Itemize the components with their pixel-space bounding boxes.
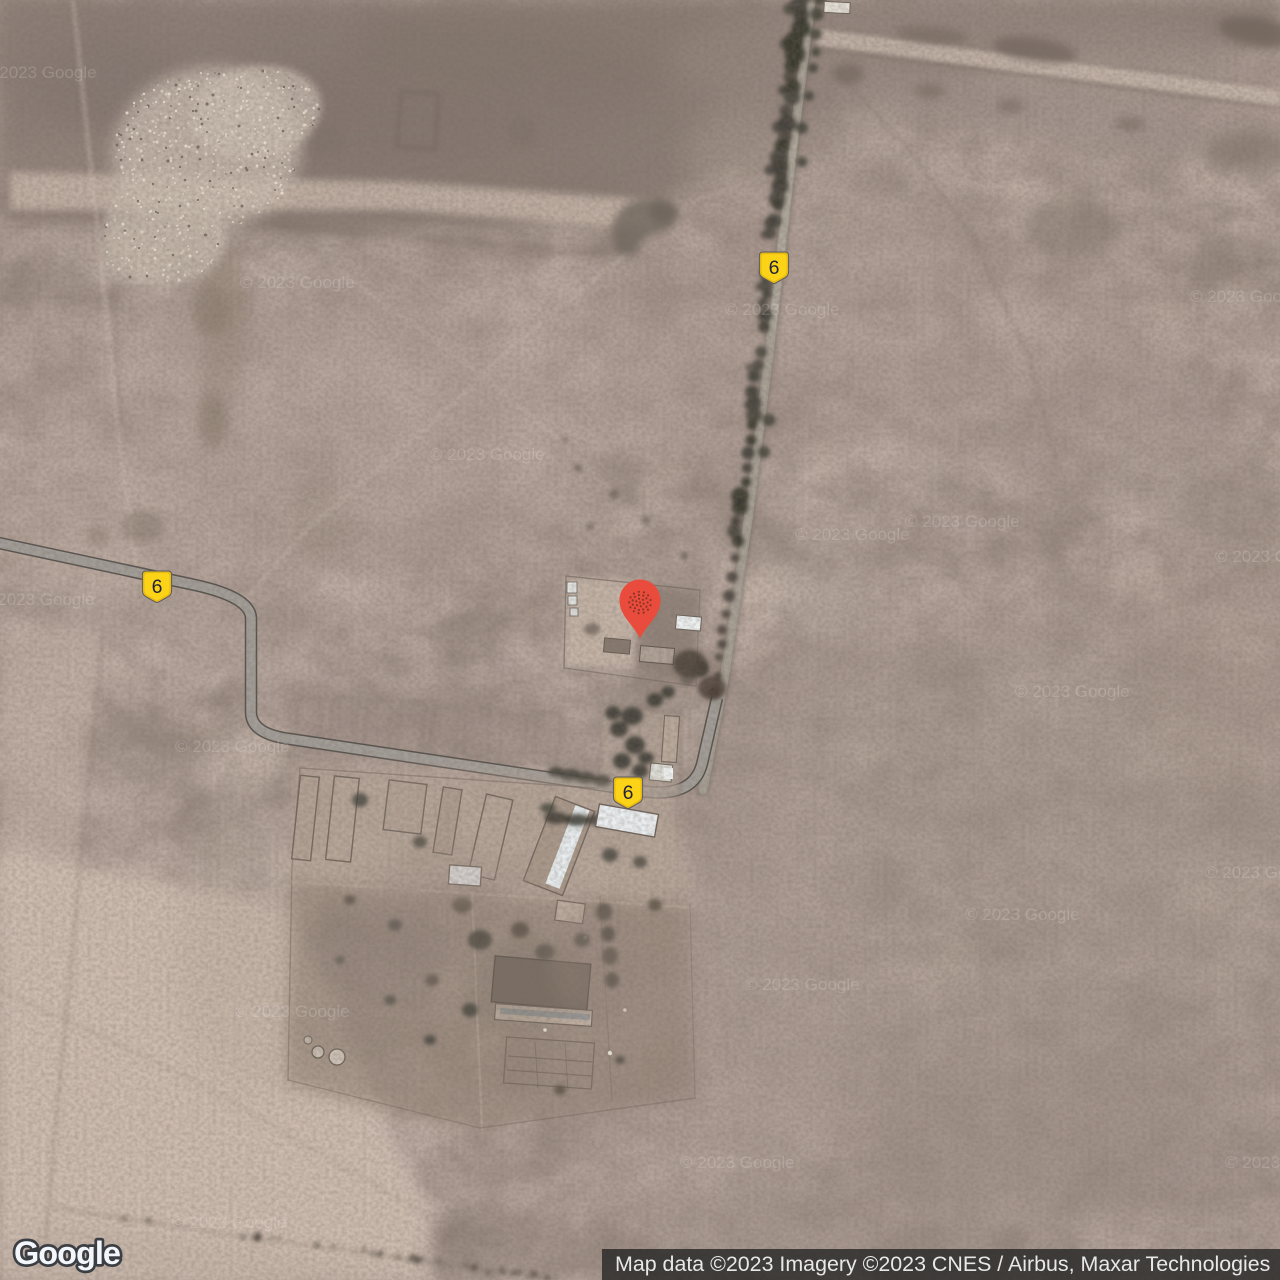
svg-text:© 2023 Google: © 2023 Google	[235, 1002, 350, 1021]
svg-text:© 2023 Google: © 2023 Google	[905, 512, 1020, 531]
svg-text:© 2023 Google: © 2023 Google	[1015, 682, 1130, 701]
svg-text:© 2023 Google: © 2023 Google	[0, 590, 95, 609]
svg-text:© 2023 Google: © 2023 Google	[172, 1213, 287, 1232]
svg-text:© 2023 Google: © 2023 Google	[175, 737, 290, 756]
svg-text:© 2023 Google: © 2023 Google	[1190, 287, 1280, 306]
svg-text:© 2023 Google: © 2023 Google	[745, 975, 860, 994]
svg-text:© 2023 Google: © 2023 Google	[725, 300, 840, 319]
svg-text:© 2023 Google: © 2023 Google	[1215, 547, 1280, 566]
svg-text:© 2023 Google: © 2023 Google	[965, 905, 1080, 924]
svg-text:© 2023 Google: © 2023 Google	[1205, 863, 1280, 882]
svg-text:© 2023 Google: © 2023 Google	[0, 63, 97, 82]
svg-text:© 2023 Google: © 2023 Google	[795, 525, 910, 544]
svg-text:6: 6	[769, 257, 780, 279]
svg-text:© 2023 Google: © 2023 Google	[680, 1153, 795, 1172]
svg-text:6: 6	[152, 576, 163, 598]
svg-text:© 2023 Google: © 2023 Google	[240, 273, 355, 292]
svg-text:6: 6	[623, 782, 634, 804]
svg-text:© 2023 Google: © 2023 Google	[1225, 1153, 1280, 1172]
svg-text:© 2023 Google: © 2023 Google	[430, 445, 545, 464]
svg-text:Google: Google	[14, 1235, 120, 1271]
